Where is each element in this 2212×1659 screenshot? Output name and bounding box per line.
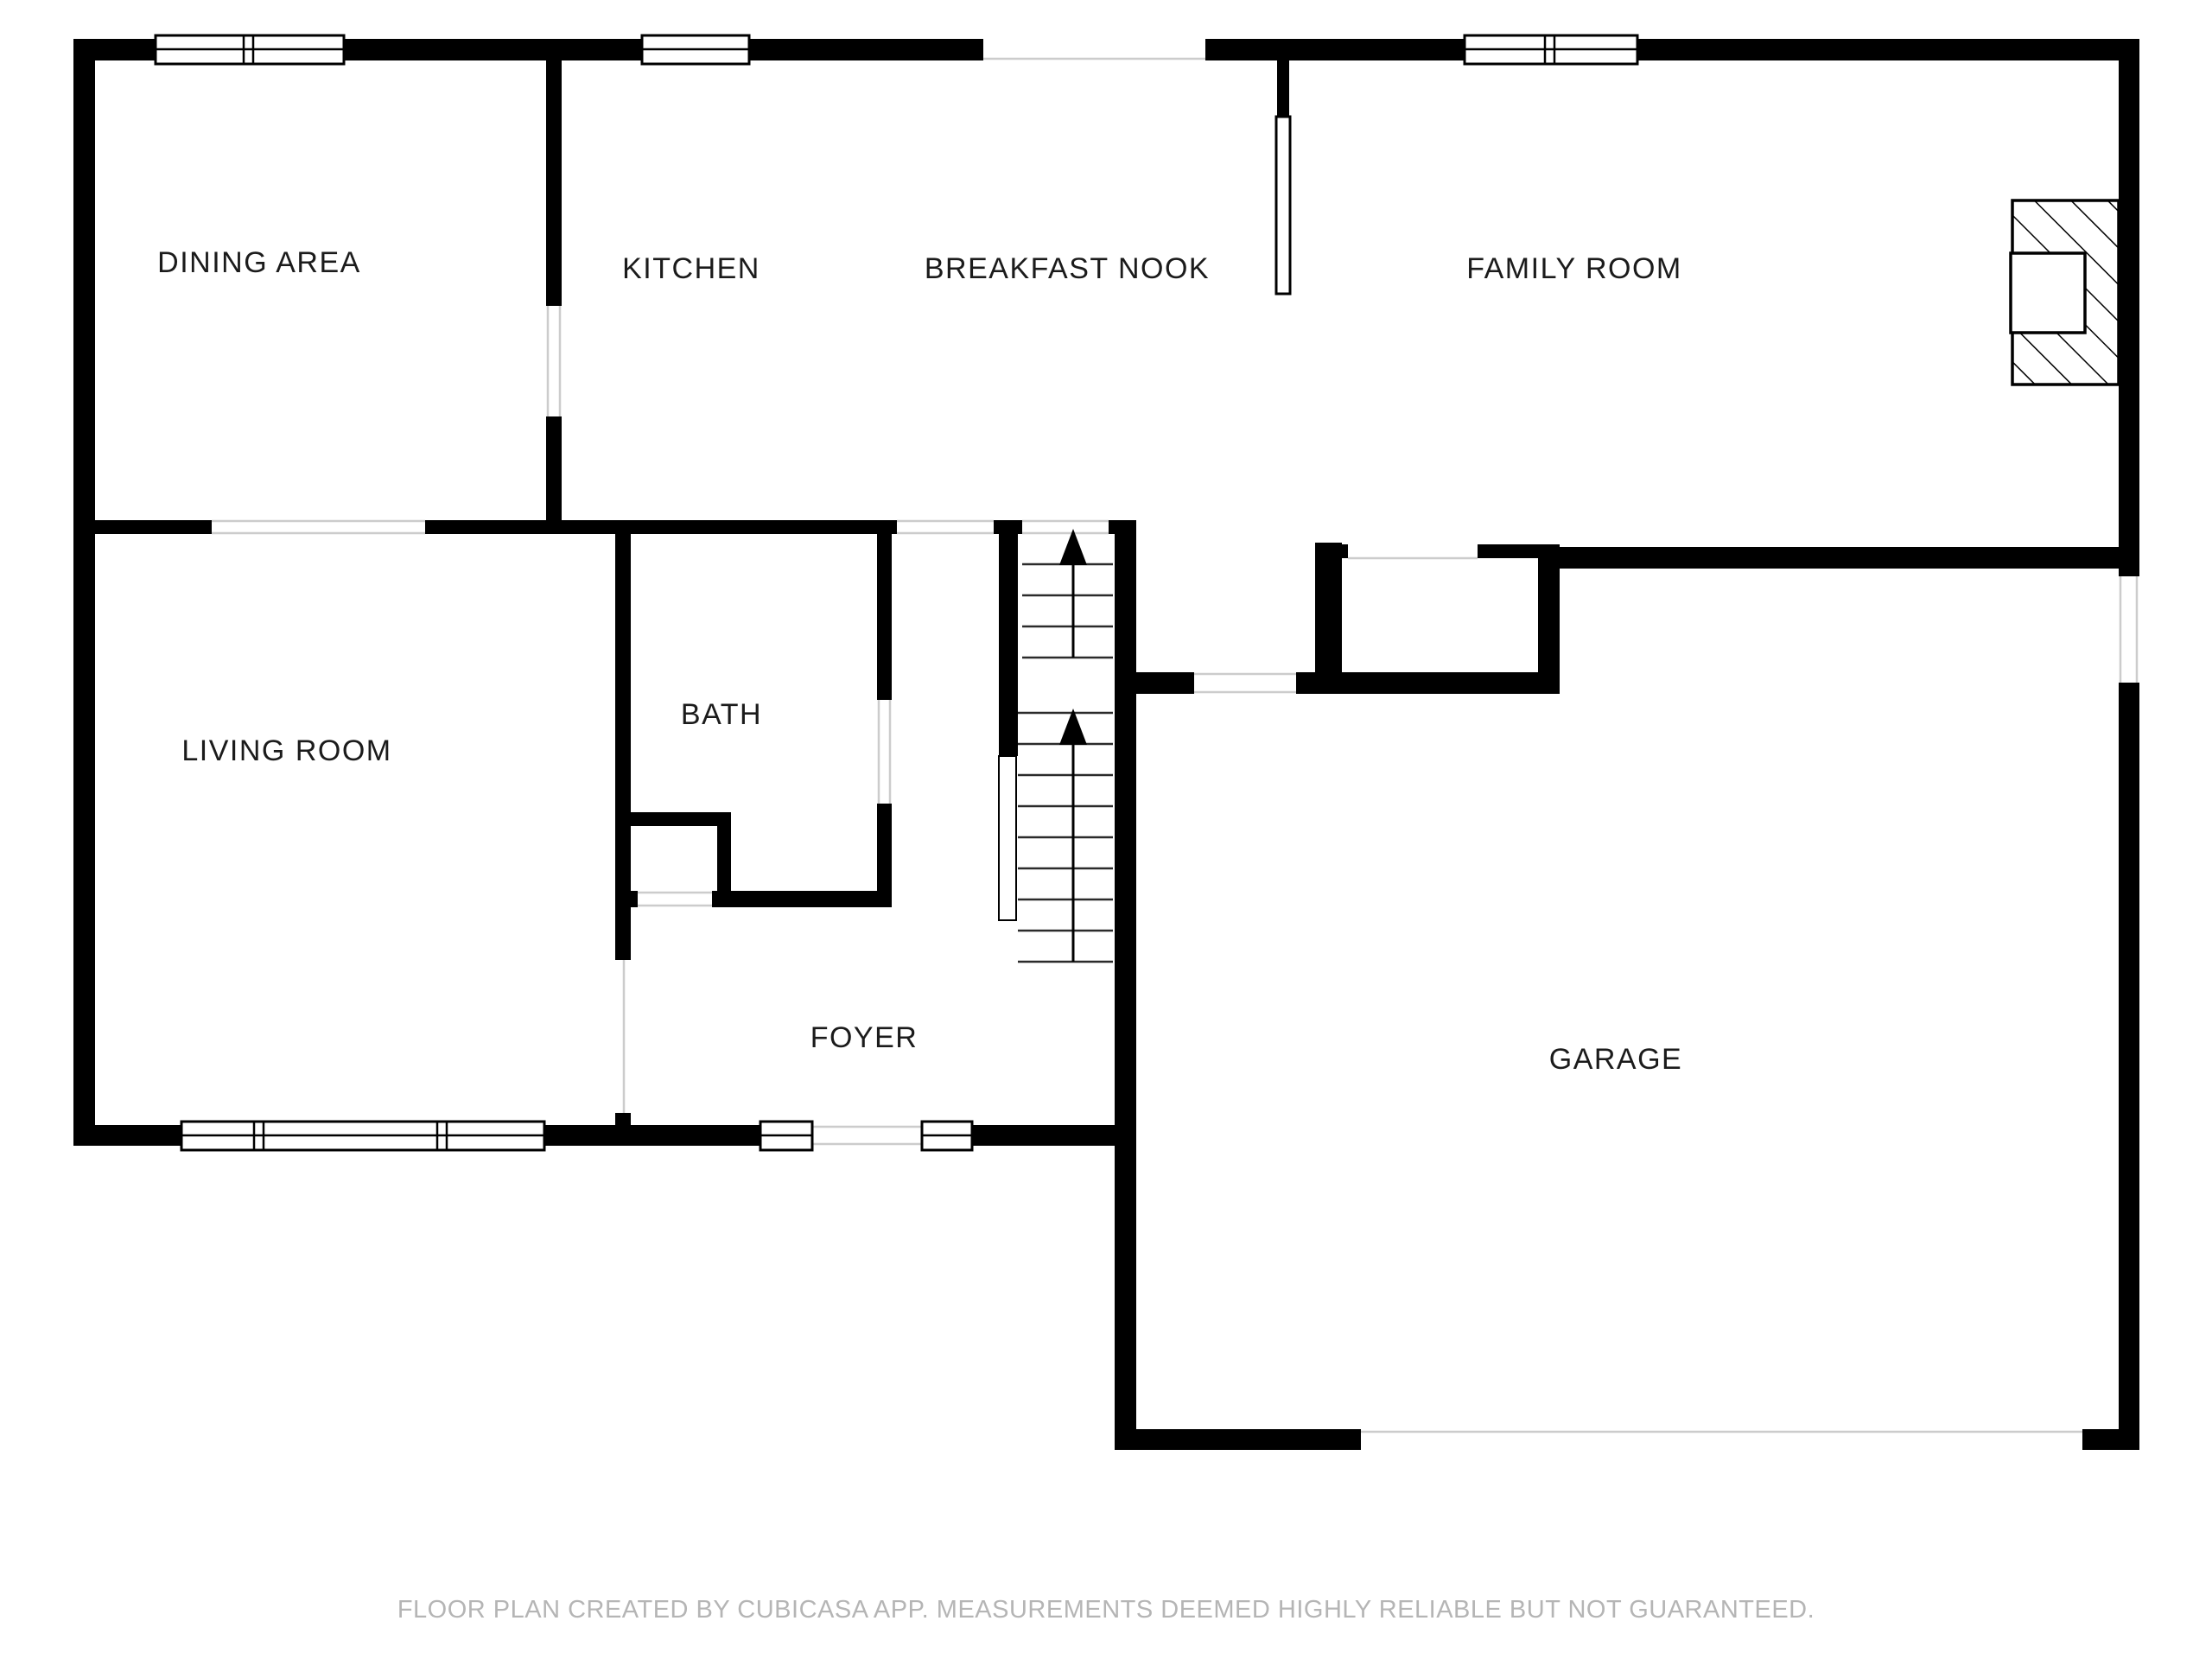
room-label-family-room: FAMILY ROOM — [1466, 252, 1682, 285]
room-label-dining-area: DINING AREA — [157, 246, 361, 279]
room-label-foyer: FOYER — [810, 1021, 918, 1054]
room-labels: DINING AREA KITCHEN BREAKFAST NOOK FAMIL… — [157, 246, 1682, 1076]
staircase — [1018, 529, 1113, 962]
room-label-garage: GARAGE — [1549, 1043, 1682, 1076]
nook-divider-window-icon — [1276, 117, 1290, 294]
stair-up-arrow-icon — [1059, 529, 1087, 658]
stair-railing-icon — [999, 756, 1016, 920]
fireplace-icon — [2011, 200, 2119, 385]
foyer-window-left-icon — [760, 1122, 812, 1150]
room-label-breakfast-nook: BREAKFAST NOOK — [925, 252, 1210, 285]
dining-window-icon — [156, 35, 344, 64]
foyer-window-right-icon — [922, 1122, 972, 1150]
stair-up-arrow-lower-icon — [1059, 709, 1087, 962]
room-label-bath: BATH — [681, 698, 762, 731]
living-room-window-icon — [181, 1122, 544, 1150]
stair-treads-upper — [1022, 564, 1113, 658]
floor-plan-canvas: DINING AREA KITCHEN BREAKFAST NOOK FAMIL… — [0, 0, 2212, 1659]
room-label-living-room: LIVING ROOM — [181, 734, 391, 767]
stair-treads-lower — [1018, 713, 1113, 962]
footer-credit-text: FLOOR PLAN CREATED BY CUBICASA APP. MEAS… — [397, 1596, 1815, 1624]
floor-plan-page: DINING AREA KITCHEN BREAKFAST NOOK FAMIL… — [0, 0, 2212, 1659]
family-room-window-icon — [1465, 35, 1637, 64]
kitchen-window-icon — [642, 35, 749, 64]
windows — [156, 35, 1637, 1150]
room-label-kitchen: KITCHEN — [622, 252, 760, 285]
